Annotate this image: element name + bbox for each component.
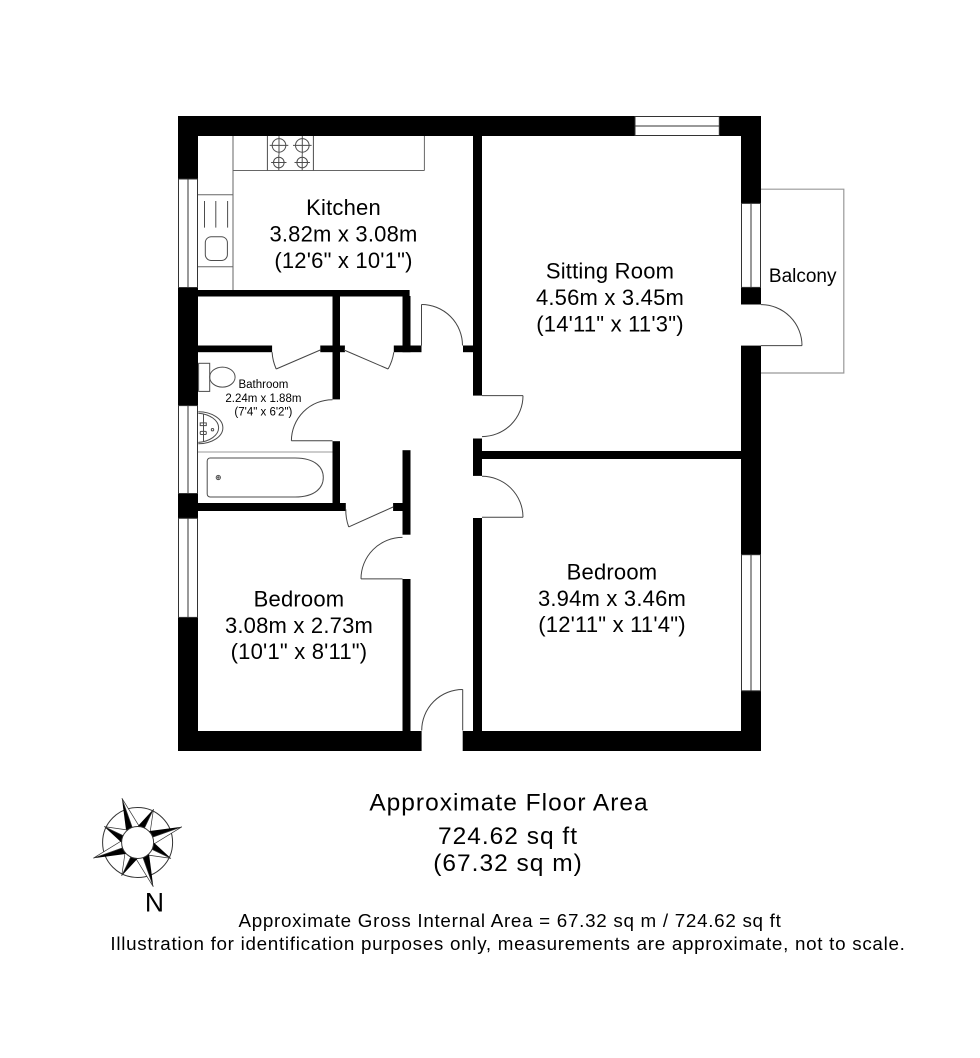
svg-text:724.62 sq ft: 724.62 sq ft [438, 823, 578, 850]
svg-text:2.24m x 1.88m: 2.24m x 1.88m [225, 393, 301, 405]
svg-text:Approximate Floor Area: Approximate Floor Area [369, 790, 648, 817]
svg-text:N: N [145, 888, 164, 918]
svg-text:Balcony: Balcony [769, 266, 837, 287]
svg-text:(67.32 sq m): (67.32 sq m) [433, 850, 583, 877]
svg-text:Approximate Gross Internal Are: Approximate Gross Internal Area = 67.32 … [238, 910, 781, 931]
svg-text:Illustration for identificatio: Illustration for identification purposes… [110, 933, 905, 954]
svg-text:(7'4" x 6'2"): (7'4" x 6'2") [234, 407, 292, 419]
svg-text:Bathroom: Bathroom [238, 379, 288, 391]
svg-text:(10'1" x 8'11"): (10'1" x 8'11") [231, 639, 368, 664]
svg-text:4.56m x 3.45m: 4.56m x 3.45m [536, 285, 684, 310]
svg-text:(12'6" x 10'1"): (12'6" x 10'1") [274, 248, 412, 273]
svg-text:3.08m x 2.73m: 3.08m x 2.73m [225, 613, 373, 638]
svg-text:Bedroom: Bedroom [254, 586, 345, 611]
svg-text:Kitchen: Kitchen [306, 195, 381, 220]
svg-text:(12'11" x 11'4"): (12'11" x 11'4") [538, 612, 685, 637]
svg-text:3.82m x 3.08m: 3.82m x 3.08m [269, 221, 417, 246]
svg-text:Bedroom: Bedroom [567, 559, 658, 584]
svg-text:(14'11" x 11'3"): (14'11" x 11'3") [536, 311, 683, 336]
svg-text:Sitting Room: Sitting Room [546, 259, 674, 284]
svg-text:3.94m x 3.46m: 3.94m x 3.46m [538, 586, 686, 611]
